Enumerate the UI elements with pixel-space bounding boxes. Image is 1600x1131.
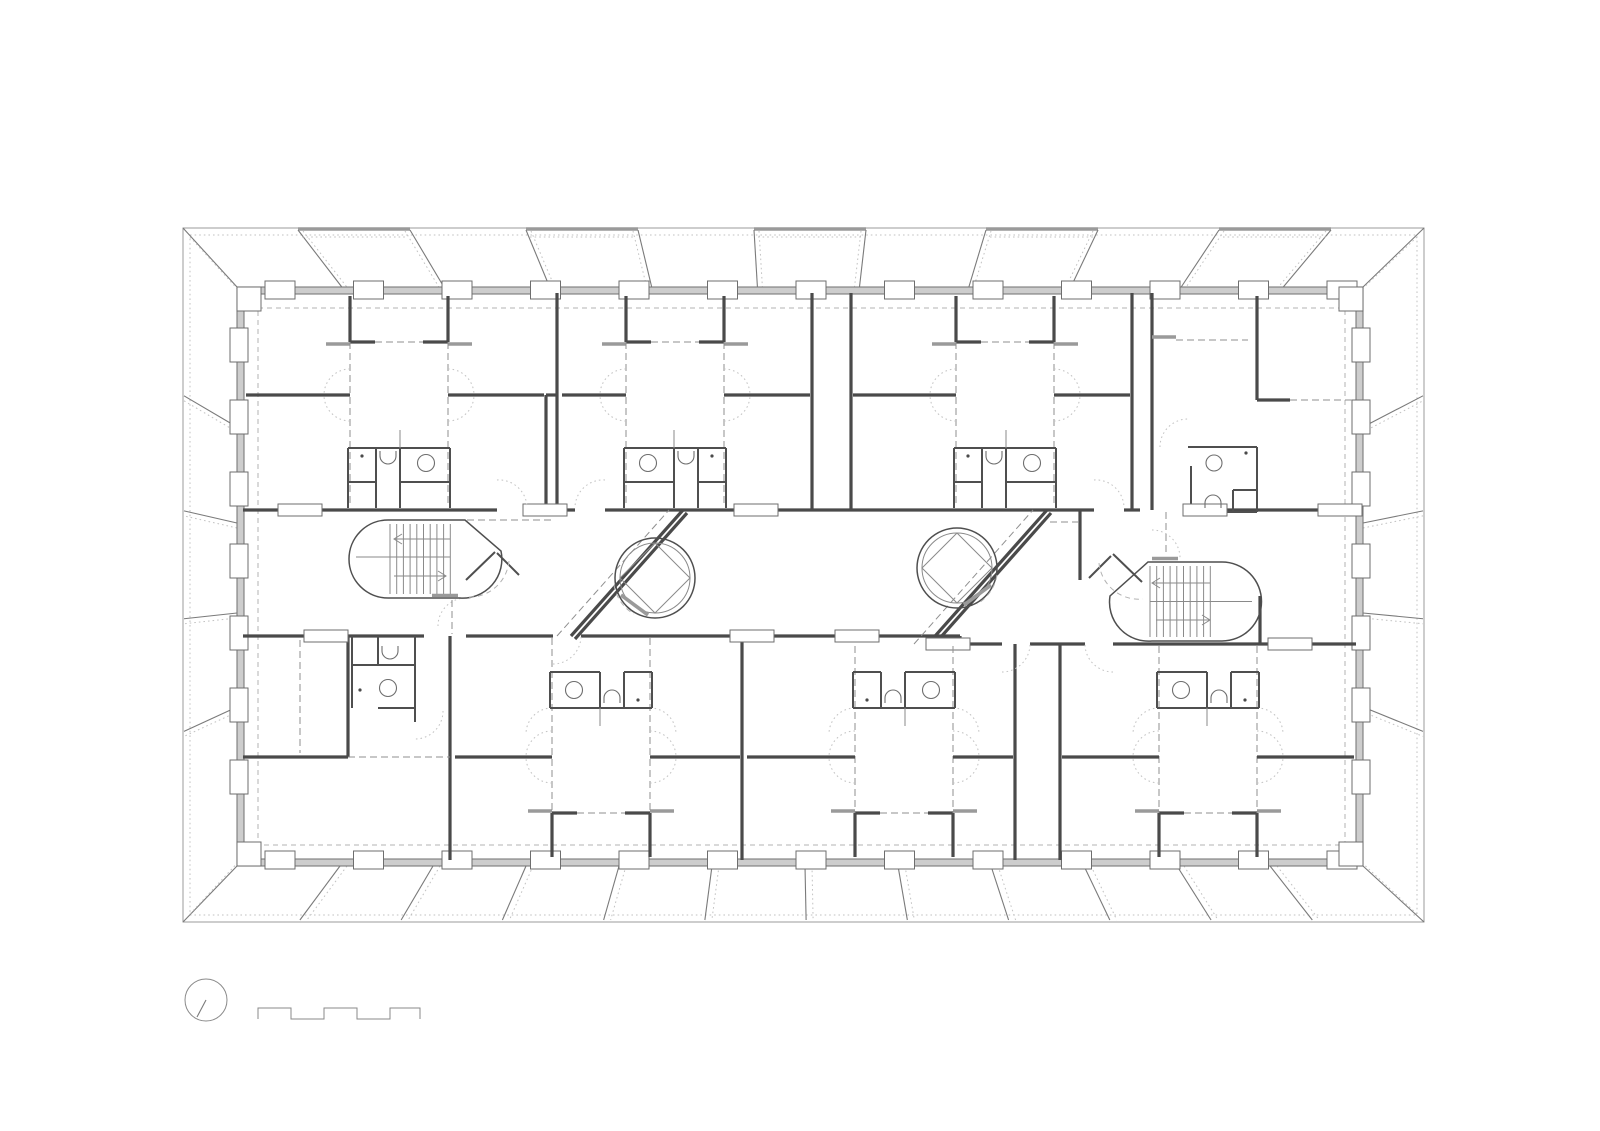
apartment-top-2 (562, 296, 810, 508)
stairwell-left (349, 520, 519, 634)
stairwell-right (1089, 512, 1262, 641)
north-indicator (185, 979, 227, 1021)
perimeter-canopy (183, 228, 1424, 922)
apartment-bottom-3 (747, 644, 1030, 857)
floor-plan-page (0, 0, 1600, 1131)
legend (185, 979, 420, 1021)
elevator-right (917, 528, 997, 608)
apartment-top-3 (853, 296, 1130, 508)
floor-plan-drawing (0, 0, 1600, 1131)
building-shell (230, 281, 1370, 869)
apartment-bottom-2 (455, 636, 740, 857)
apartment-top-1 (246, 296, 544, 508)
apartment-bottom-4 (1062, 644, 1354, 857)
scale-bar (258, 1008, 420, 1019)
